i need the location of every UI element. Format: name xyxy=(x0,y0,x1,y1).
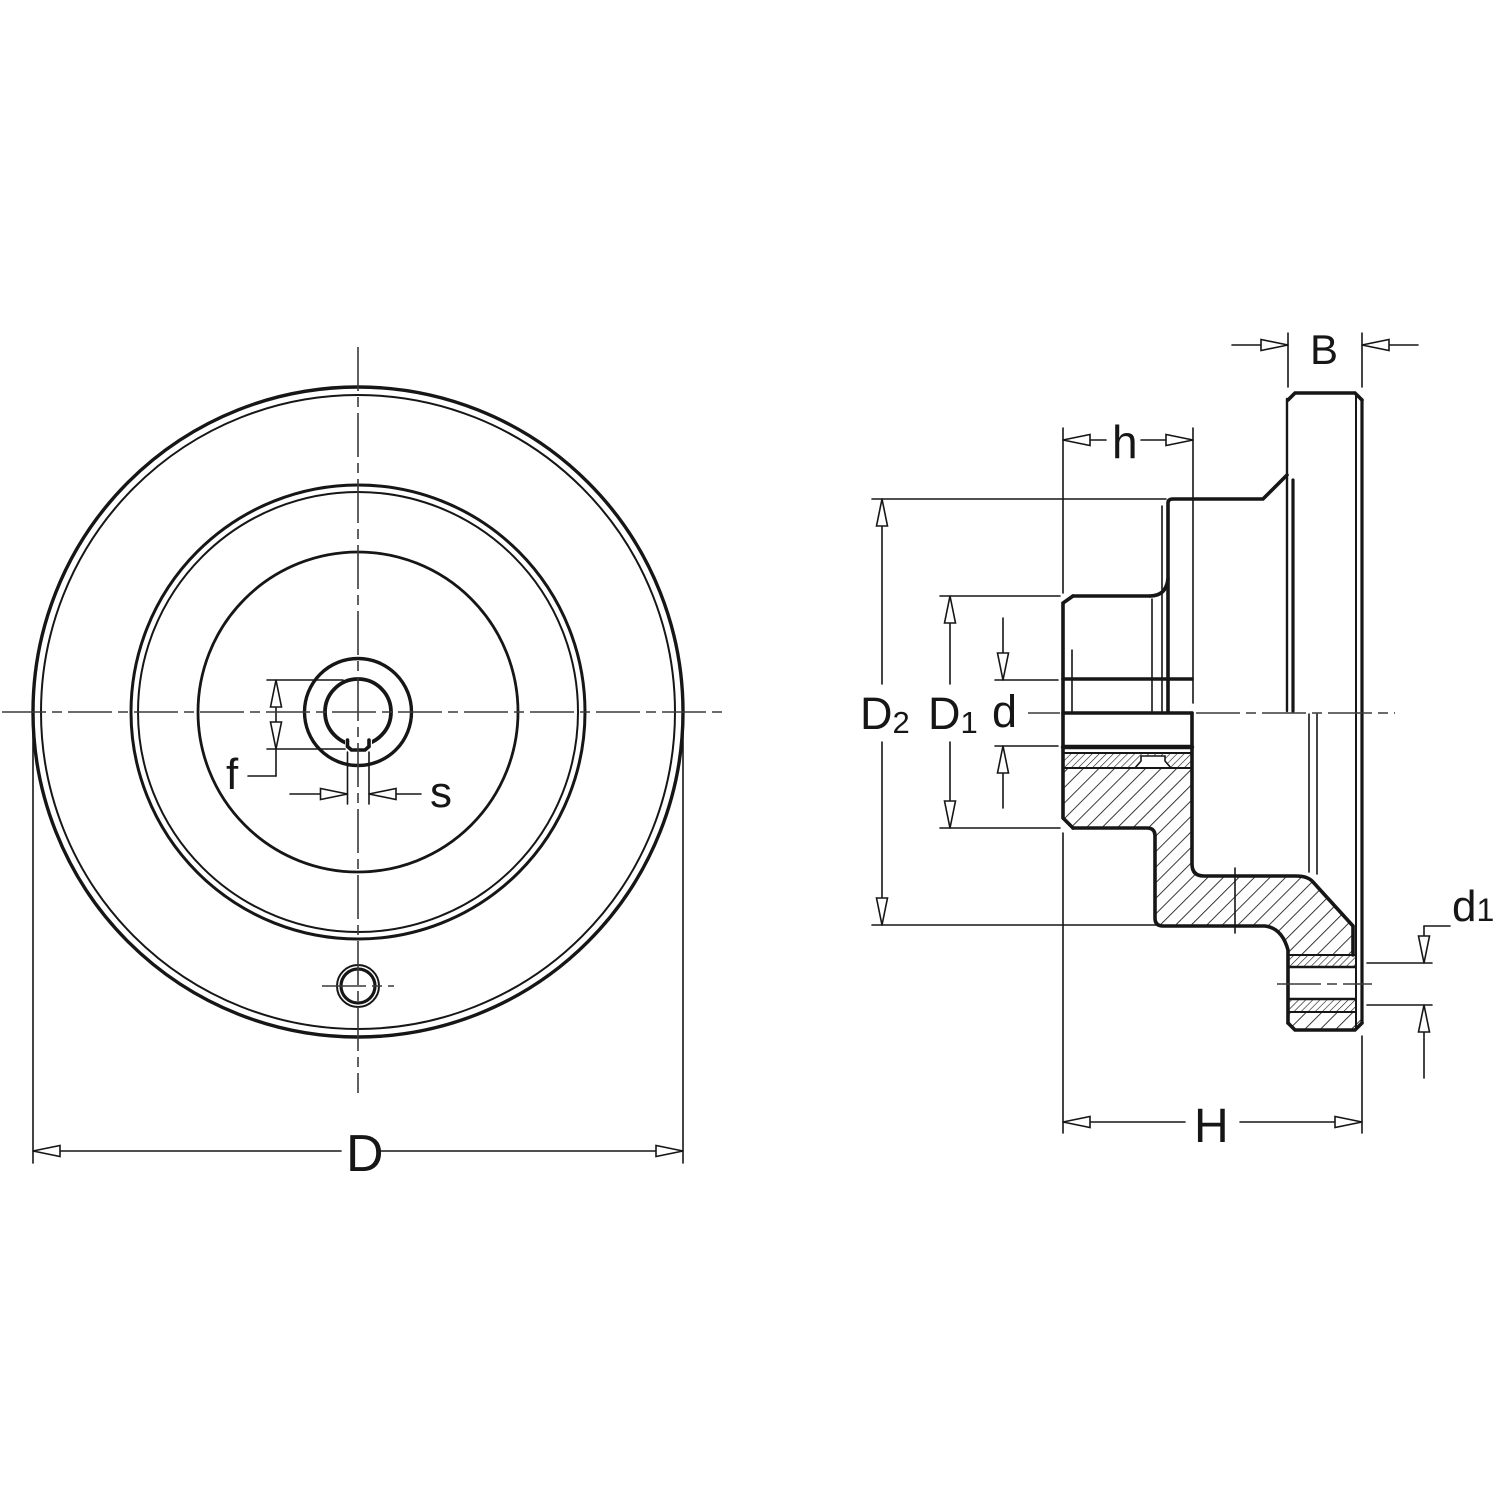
handwheel-technical-drawing: f s D B h D2 D1 d d1 H xyxy=(0,0,1500,1500)
drawing-canvas: f s D B h D2 D1 d d1 H xyxy=(0,0,1500,1500)
handle-bushing-upper-hatch xyxy=(1288,955,1355,967)
label-h: h xyxy=(1112,416,1138,468)
label-B: B xyxy=(1310,326,1338,373)
handle-bushing-lower-hatch xyxy=(1288,999,1355,1012)
rim-bottom-section-hatch xyxy=(1288,1012,1362,1030)
label-f: f xyxy=(226,750,239,799)
label-H: H xyxy=(1194,1100,1229,1153)
label-d: d xyxy=(992,686,1017,737)
drawing-background xyxy=(0,0,1500,1500)
keyway-section-notch xyxy=(1135,756,1171,768)
label-D: D xyxy=(346,1125,384,1183)
hub-bushing-section-hatch xyxy=(1063,753,1192,768)
label-s: s xyxy=(430,768,452,817)
